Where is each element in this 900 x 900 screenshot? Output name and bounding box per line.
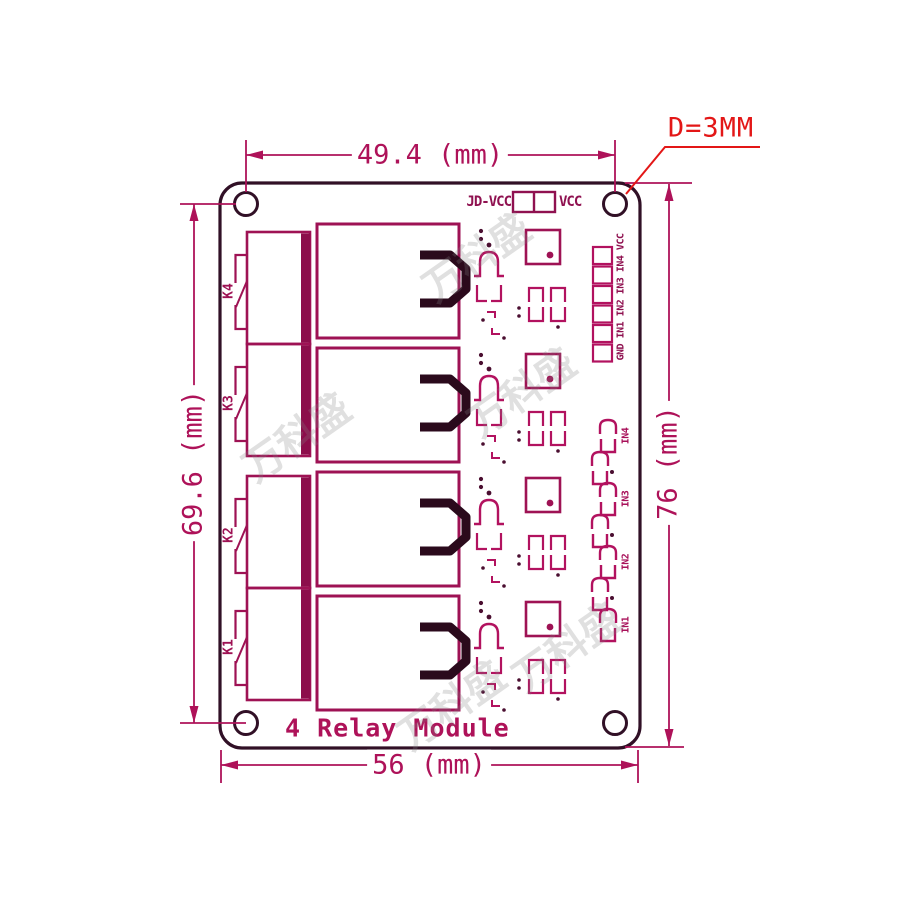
input-label-in2: IN2 (621, 554, 632, 571)
terminal-label-k4: K4 (222, 283, 237, 299)
terminal-label-k3: K3 (222, 395, 237, 411)
arrow-down-icon (190, 706, 199, 723)
hole-diameter-callout: D=3MM (668, 113, 754, 144)
terminal-block-k2 (236, 476, 311, 588)
input-header-pads (593, 247, 612, 362)
input-header-label: GND IN1 IN2 IN3 IN4 VCC (616, 234, 627, 361)
arrow-right-icon (598, 151, 615, 160)
pcb-dimension-drawing: 49.4 (mm) 69.6 (mm) 76 (mm) 56 (mm) D=3M… (0, 0, 900, 900)
vcc-label: VCC (559, 194, 581, 210)
terminal-block-k4 (236, 232, 311, 344)
arrow-up-icon (190, 204, 199, 221)
mounting-hole-top-left (235, 193, 258, 216)
dimension-bottom-width: 56 (mm) (367, 750, 491, 781)
terminal-block-k1 (236, 588, 311, 700)
hole-diameter-leader-line (626, 147, 760, 194)
arrow-down-icon (665, 729, 674, 746)
jdvcc-jumper-block (513, 192, 555, 212)
arrow-right-icon (621, 761, 638, 770)
arrow-left-icon (246, 151, 263, 160)
terminal-label-k2: K2 (222, 527, 237, 543)
mounting-hole-bottom-right (604, 712, 627, 735)
input-label-in3: IN3 (621, 491, 632, 508)
dimension-top-width: 49.4 (mm) (352, 140, 508, 171)
arrow-left-icon (221, 761, 238, 770)
mounting-hole-top-right (604, 193, 627, 216)
arrow-up-icon (665, 184, 674, 201)
terminal-label-k1: K1 (222, 639, 237, 655)
dimension-right-height: 76 (mm) (653, 401, 684, 525)
dimension-left-height: 69.6 (mm) (178, 385, 209, 541)
input-label-in4: IN4 (621, 428, 632, 445)
relay-channel-2 (317, 472, 565, 588)
